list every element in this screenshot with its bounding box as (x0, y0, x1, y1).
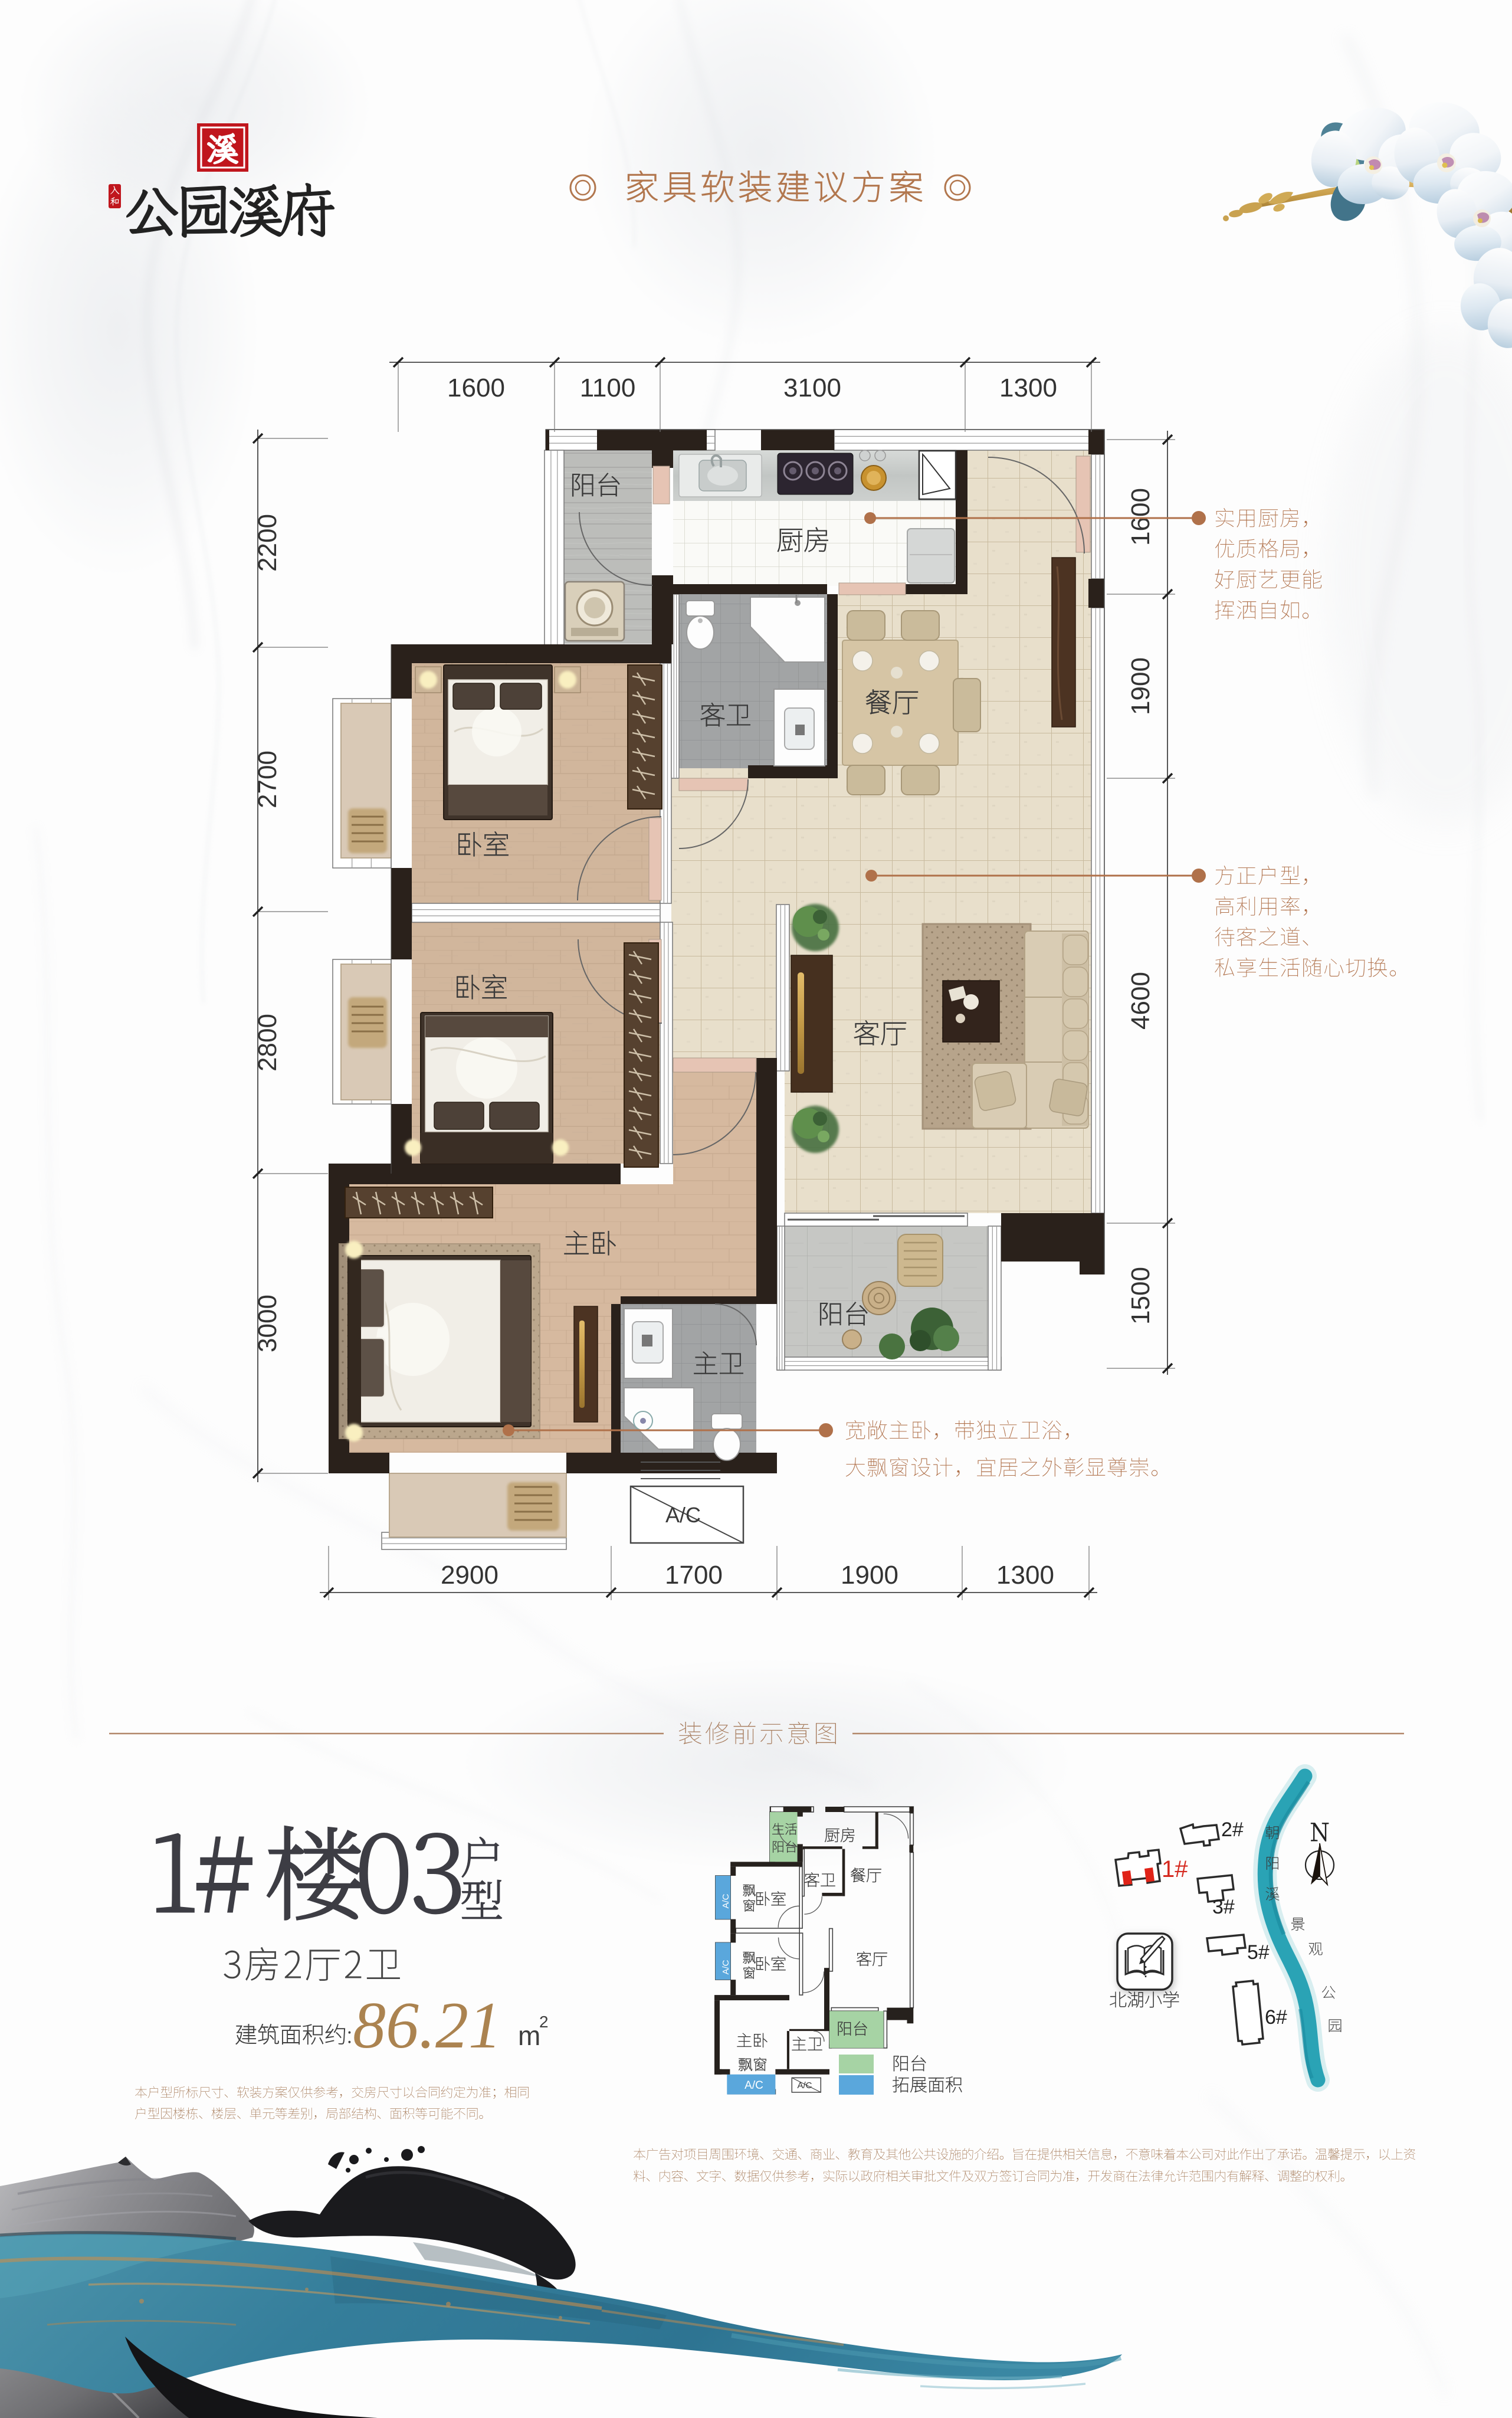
svg-text:2900: 2900 (441, 1561, 498, 1590)
svg-text:3000: 3000 (253, 1295, 282, 1352)
svg-text:1300: 1300 (999, 373, 1057, 402)
svg-text:1#: 1# (1162, 1856, 1188, 1882)
svg-text:5#: 5# (1247, 1941, 1270, 1964)
svg-text:1900: 1900 (1126, 657, 1155, 715)
svg-text:2#: 2# (1221, 1819, 1244, 1841)
svg-text:2: 2 (539, 2013, 549, 2031)
svg-text:1600: 1600 (1126, 488, 1155, 546)
svg-text:A/C: A/C (744, 2079, 763, 2092)
svg-text:3100: 3100 (783, 373, 841, 402)
svg-text:1900: 1900 (841, 1561, 898, 1590)
svg-text:4600: 4600 (1126, 972, 1155, 1030)
svg-text:A/C: A/C (665, 1503, 701, 1527)
svg-text:2800: 2800 (253, 1014, 282, 1072)
svg-text:A/C: A/C (721, 1960, 731, 1974)
svg-text:86.21: 86.21 (353, 1989, 501, 2062)
svg-text:m: m (518, 2020, 540, 2051)
svg-text:1700: 1700 (665, 1561, 723, 1590)
svg-text:A/C: A/C (721, 1893, 731, 1908)
svg-text:3#: 3# (1212, 1896, 1235, 1918)
svg-text:1100: 1100 (580, 373, 636, 402)
svg-text:A/C: A/C (797, 2080, 812, 2091)
svg-text:6#: 6# (1265, 2006, 1287, 2029)
svg-text:1300: 1300 (996, 1561, 1054, 1590)
svg-text:2200: 2200 (253, 514, 282, 572)
svg-text:1500: 1500 (1126, 1267, 1155, 1325)
svg-text:1600: 1600 (447, 373, 505, 402)
svg-text:2700: 2700 (253, 751, 282, 808)
